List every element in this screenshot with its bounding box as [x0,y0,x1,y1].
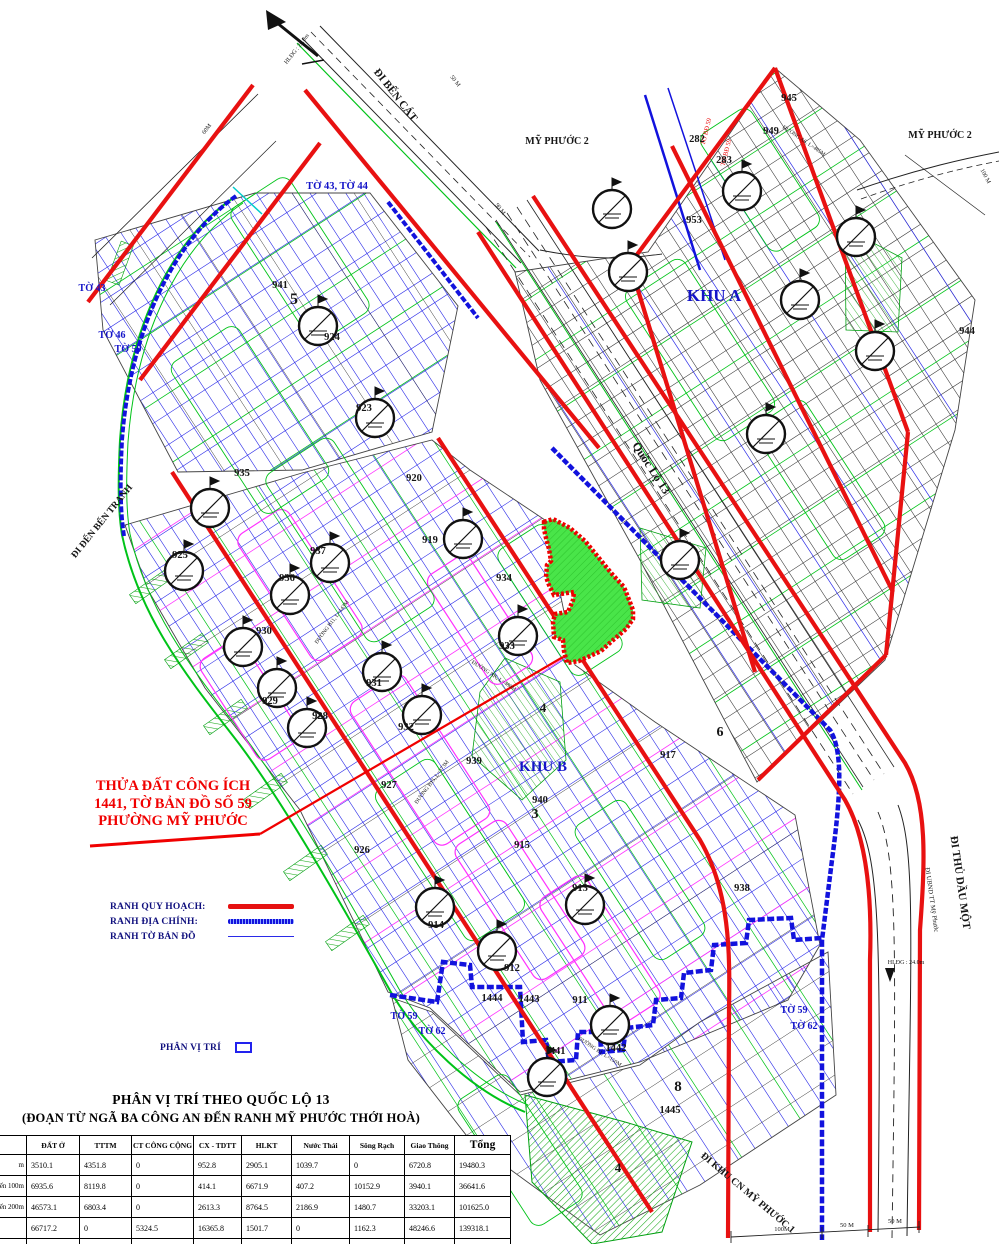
legend-label-quy-hoach: RANH QUY HOẠCH: [110,902,228,912]
map-label: 4 [540,700,547,715]
table-cell: 92110.6 [405,1239,455,1244]
table-cell: 3510.1 [27,1155,80,1176]
map-label: 940 [532,795,548,806]
annotation-line1: THỬA ĐẤT CÔNG ÍCH [84,778,262,796]
table-cell: 0 [80,1218,132,1239]
table-header-Tổng: Tổng [455,1136,511,1155]
table-cell: 6720.8 [405,1155,455,1176]
table-cell: 1480.7 [350,1197,405,1218]
table-cell: 5324.5 [132,1218,194,1239]
table-cell: 3633.8 [292,1239,350,1244]
legend-row-quy-hoach: RANH QUY HOẠCH: [110,899,300,914]
map-label: 928 [312,711,328,722]
table-cell: 2613.3 [194,1197,242,1218]
table-cell: 6671.9 [242,1176,292,1197]
map-label: 917 [660,750,676,761]
map-label: 1445 [660,1105,681,1116]
legend-label-to-ban-do: RANH TỜ BẢN ĐỒ [110,932,228,942]
legend: RANH QUY HOẠCH: RANH ĐỊA CHÍNH: RANH TỜ … [110,899,300,944]
map-label: 934 [496,573,513,584]
table-cell: 4351.8 [80,1155,132,1176]
table-cell: 1039.7 [292,1155,350,1176]
map-label: 923 [356,403,372,414]
map-label: MỸ PHƯỚC 2 [908,129,972,141]
position-legend-rect-icon [235,1042,252,1053]
map-label: TỜ 59 [391,1010,418,1022]
table-row: m3510.14351.80952.82905.11039.706720.819… [0,1155,511,1176]
map-label: 50 M [888,1218,902,1225]
map-label: 939 [466,756,482,767]
table-row-label: đến 200m [0,1197,27,1218]
legend-row-dia-chinh: RANH ĐỊA CHÍNH: [110,914,300,929]
table-cell: 5324.5 [132,1239,194,1244]
table-cell: 12795.9 [350,1239,405,1244]
table-cell: 66717.2 [27,1218,80,1239]
map-title-line2: (ĐOẠN TỪ NGÃ BA CÔNG AN ĐẾN RANH MỸ PHƯỚ… [0,1111,442,1126]
area-statistics-table-wrap: ĐẤT ỞTTTMCT CÔNG CỘNGCX - TDTTHLKTNước T… [0,1135,511,1244]
map-label: 949 [763,126,779,137]
annotation-line3: PHƯỜNG MỸ PHƯỚC [84,813,262,831]
map-label: TỜ 59 [781,1004,808,1016]
table-cell: 952.8 [194,1155,242,1176]
table-header-Giao Thông: Giao Thông [405,1136,455,1155]
map-label: 282 [689,134,705,145]
position-legend: PHÂN VỊ TRÍ [160,1042,252,1053]
map-label: TỜ 43 [79,282,106,294]
map-label: 1444 [482,993,504,1004]
table-cell: 19480.3 [455,1155,511,1176]
table-row: 66717.205324.516365.81501.701162.348246.… [0,1218,511,1239]
map-label: 937 [310,546,326,557]
map-label: TỜ 62 [791,1020,818,1032]
table-header-CX - TDTT: CX - TDTT [194,1136,242,1155]
table-cell: 19275 [80,1239,132,1244]
table-header-TTTM: TTTM [80,1136,132,1155]
table-cell: 407.2 [292,1176,350,1197]
map-label: KHU B [519,759,567,775]
table-cell: 46573.1 [27,1197,80,1218]
legend-label-dia-chinh: RANH ĐỊA CHÍNH: [110,917,228,927]
table-header-ĐẤT Ở: ĐẤT Ở [27,1136,80,1155]
map-label: 936 [279,573,295,584]
table-cell: 1501.7 [242,1218,292,1239]
cadastral-map-page: ĐI BẾN CÁTMỸ PHƯỚC 2MỸ PHƯỚC 2TỜ 43, TỜ … [0,0,999,1244]
map-label: 6 [717,725,724,740]
table-cell: 123736 [27,1239,80,1244]
map-label: 953 [686,215,702,226]
table-header-label [0,1136,27,1155]
position-legend-label: PHÂN VỊ TRÍ [160,1043,221,1053]
parcel-annotation: THỬA ĐẤT CÔNG ÍCH 1441, TỜ BẢN ĐỒ SỐ 59 … [84,778,262,831]
map-label: 931 [366,678,382,689]
table-row-label: ến 100m [0,1176,27,1197]
map-label: 930 [256,626,272,637]
table-row: đến 200m46573.16803.402613.38764.52186.9… [0,1197,511,1218]
table-cell: 19843.2 [242,1239,292,1244]
annotation-line2: 1441, TỜ BẢN ĐỒ SỐ 59 [84,796,262,814]
map-label: HLĐG : 24.0m [888,960,925,966]
table-row-label: m [0,1155,27,1176]
table-row-label [0,1239,27,1244]
map-label: 944 [959,326,976,337]
map-label: 913 [572,883,588,894]
map-label: 8 [674,1079,682,1095]
table-cell: 0 [132,1155,194,1176]
table-cell: 101625.0 [455,1197,511,1218]
map-label: 926 [354,845,370,856]
table-cell: 6803.4 [80,1197,132,1218]
table-row-label [0,1218,27,1239]
map-label: TỜ 43, TỜ 44 [306,180,368,192]
legend-swatch-blue-hatched-line [228,919,294,924]
table-cell: 139318.1 [455,1218,511,1239]
table-cell: 2905.1 [242,1155,292,1176]
map-label: TỜ 46 [99,329,126,341]
map-label: 1443 [519,994,540,1005]
map-label: 924 [324,332,341,343]
map-label: 3 [532,807,539,822]
area-statistics-table: ĐẤT ỞTTTMCT CÔNG CỘNGCX - TDTTHLKTNước T… [0,1135,511,1244]
table-cell: 48246.6 [405,1218,455,1239]
legend-swatch-red-line [228,904,294,909]
table-cell: 0 [350,1155,405,1176]
map-label: 50 M [840,1222,854,1229]
table-header-HLKT: HLKT [242,1136,292,1155]
table-cell: 0 [132,1176,194,1197]
table-cell: 6935.6 [27,1176,80,1197]
map-label: 912 [504,963,520,974]
map-label: 914 [428,920,445,931]
map-label: 925 [172,550,188,561]
map-label: TỜ 59 [115,343,142,355]
map-label: 933 [499,641,515,652]
map-label: MỸ PHƯỚC 2 [525,135,589,147]
map-label: 915 [514,840,530,851]
table-cell: 0 [132,1197,194,1218]
table-cell: 36641.6 [455,1176,511,1197]
map-label: 941 [272,280,288,291]
table-cell: 3940.1 [405,1176,455,1197]
map-label: 100M [774,1226,790,1233]
table-cell: 297065 [455,1239,511,1244]
table-cell: 8764.5 [242,1197,292,1218]
map-label: 4 [615,1160,622,1175]
table-cell: 1162.3 [350,1218,405,1239]
map-background [0,0,999,1244]
table-cell: 16365.8 [194,1218,242,1239]
map-label: 932 [398,722,414,733]
map-title-block: PHÂN VỊ TRÍ THEO QUỐC LỘ 13 (ĐOẠN TỪ NGÃ… [0,1092,442,1126]
map-label: 935 [234,468,250,479]
map-label: 945 [781,93,797,104]
map-label: 283 [716,155,732,166]
table-header-CT CÔNG CỘNG: CT CÔNG CỘNG [132,1136,194,1155]
table-cell: 414.1 [194,1176,242,1197]
map-label: 938 [734,883,750,894]
map-label: 920 [406,473,422,484]
table-cell: 2186.9 [292,1197,350,1218]
table-header-Sông Rạch: Sông Rạch [350,1136,405,1155]
map-title-line1: PHÂN VỊ TRÍ THEO QUỐC LỘ 13 [0,1092,442,1108]
map-label: KHU A [687,286,742,305]
table-cell: 8119.8 [80,1176,132,1197]
map-label: 919 [422,535,438,546]
map-label: 929 [262,696,278,707]
map-label: 1441 [545,1046,566,1057]
map-label: 911 [572,995,587,1006]
map-label: TỜ 62 [419,1025,446,1037]
table-header-Nước Thải: Nước Thải [292,1136,350,1155]
table-cell: 10152.9 [350,1176,405,1197]
legend-row-to-ban-do: RANH TỜ BẢN ĐỒ [110,929,300,944]
map-label: 927 [381,780,397,791]
table-cell: 0 [292,1218,350,1239]
table-cell: 33203.1 [405,1197,455,1218]
table-cell: 20346 [194,1239,242,1244]
legend-swatch-blue-thin-line [228,936,294,938]
map-label: 5 [290,291,298,308]
table-row: ến 100m6935.68119.80414.16671.9407.21015… [0,1176,511,1197]
cadastral-map-canvas: ĐI BẾN CÁTMỸ PHƯỚC 2MỸ PHƯỚC 2TỜ 43, TỜ … [0,0,999,1244]
table-row: 123736192755324.52034619843.23633.812795… [0,1239,511,1244]
map-label: 1442 [606,1043,627,1054]
